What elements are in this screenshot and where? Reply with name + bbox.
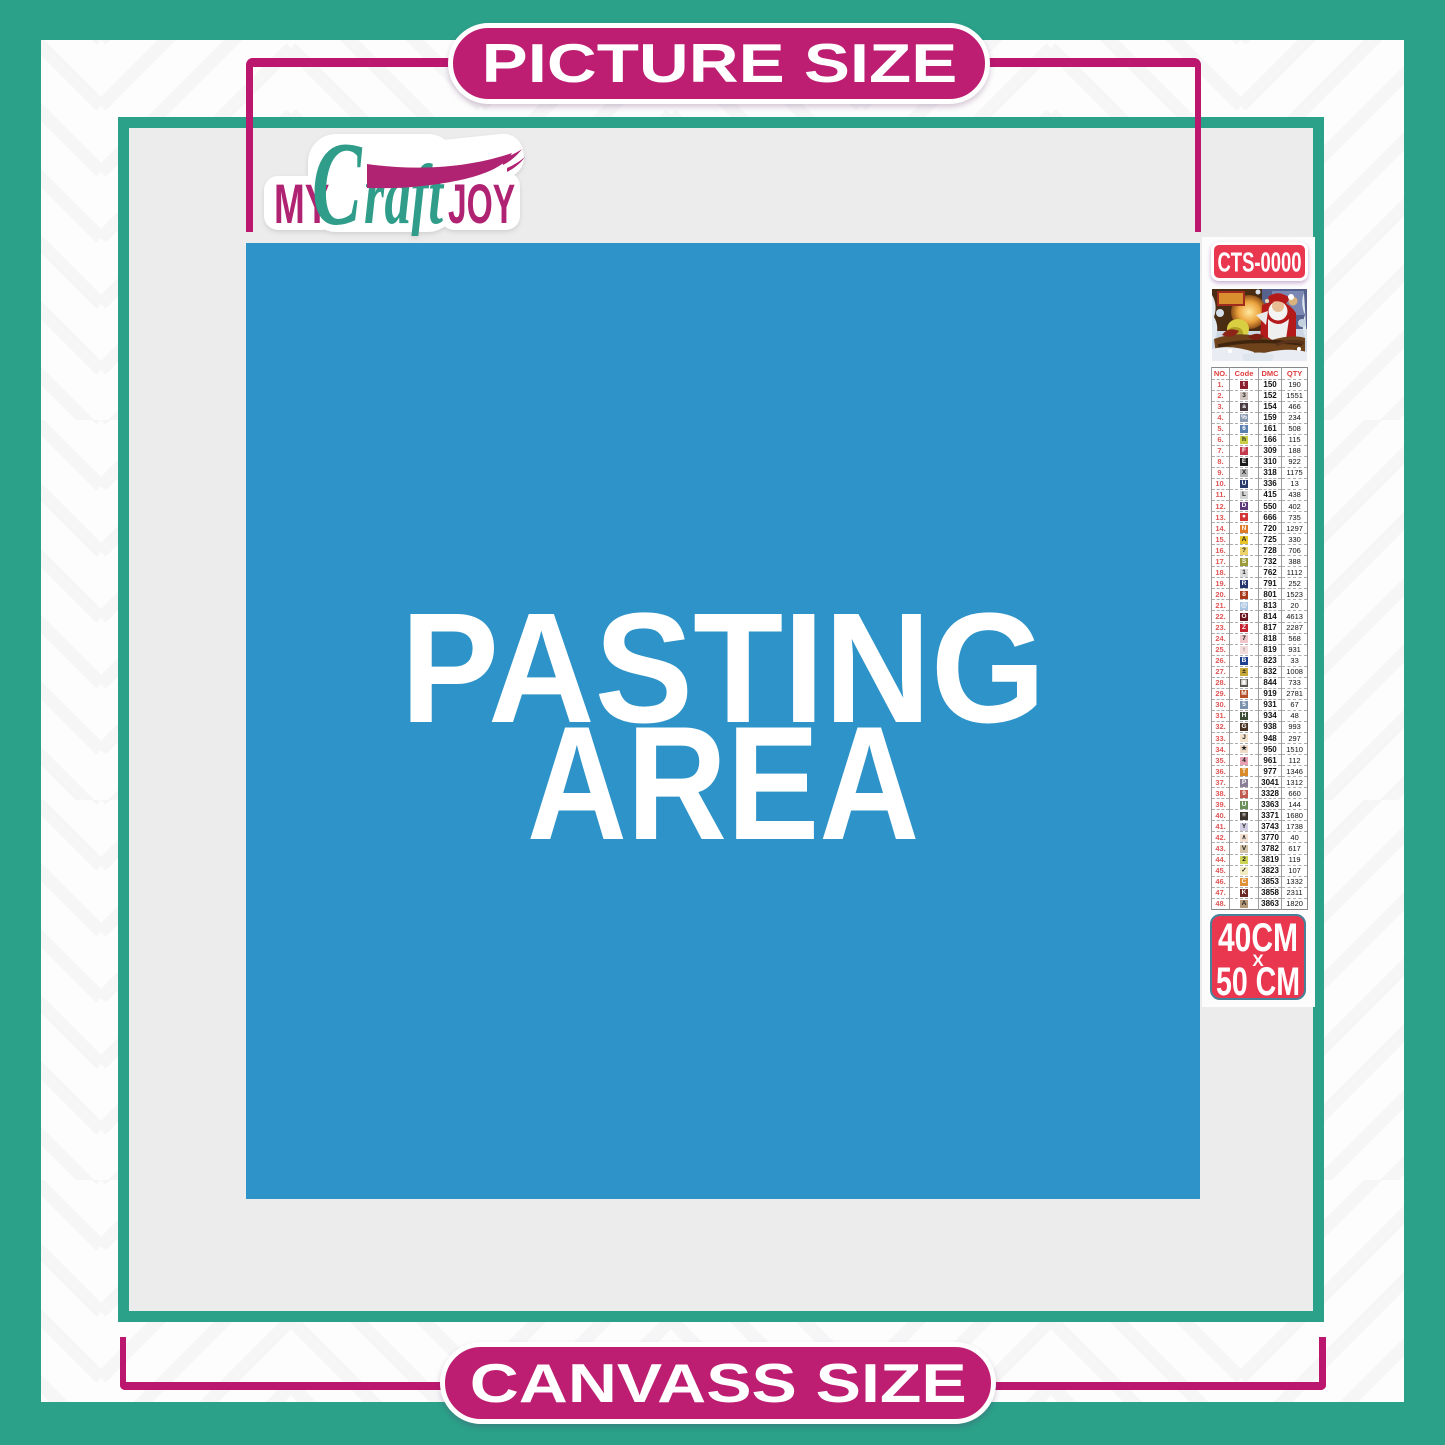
svg-text:C: C [312, 126, 363, 236]
svg-text:50 CM: 50 CM [1216, 960, 1300, 998]
svg-text:CTS-0000: CTS-0000 [1218, 247, 1302, 278]
svg-text:raft: raft [364, 148, 445, 236]
svg-text:JOY: JOY [448, 172, 515, 235]
